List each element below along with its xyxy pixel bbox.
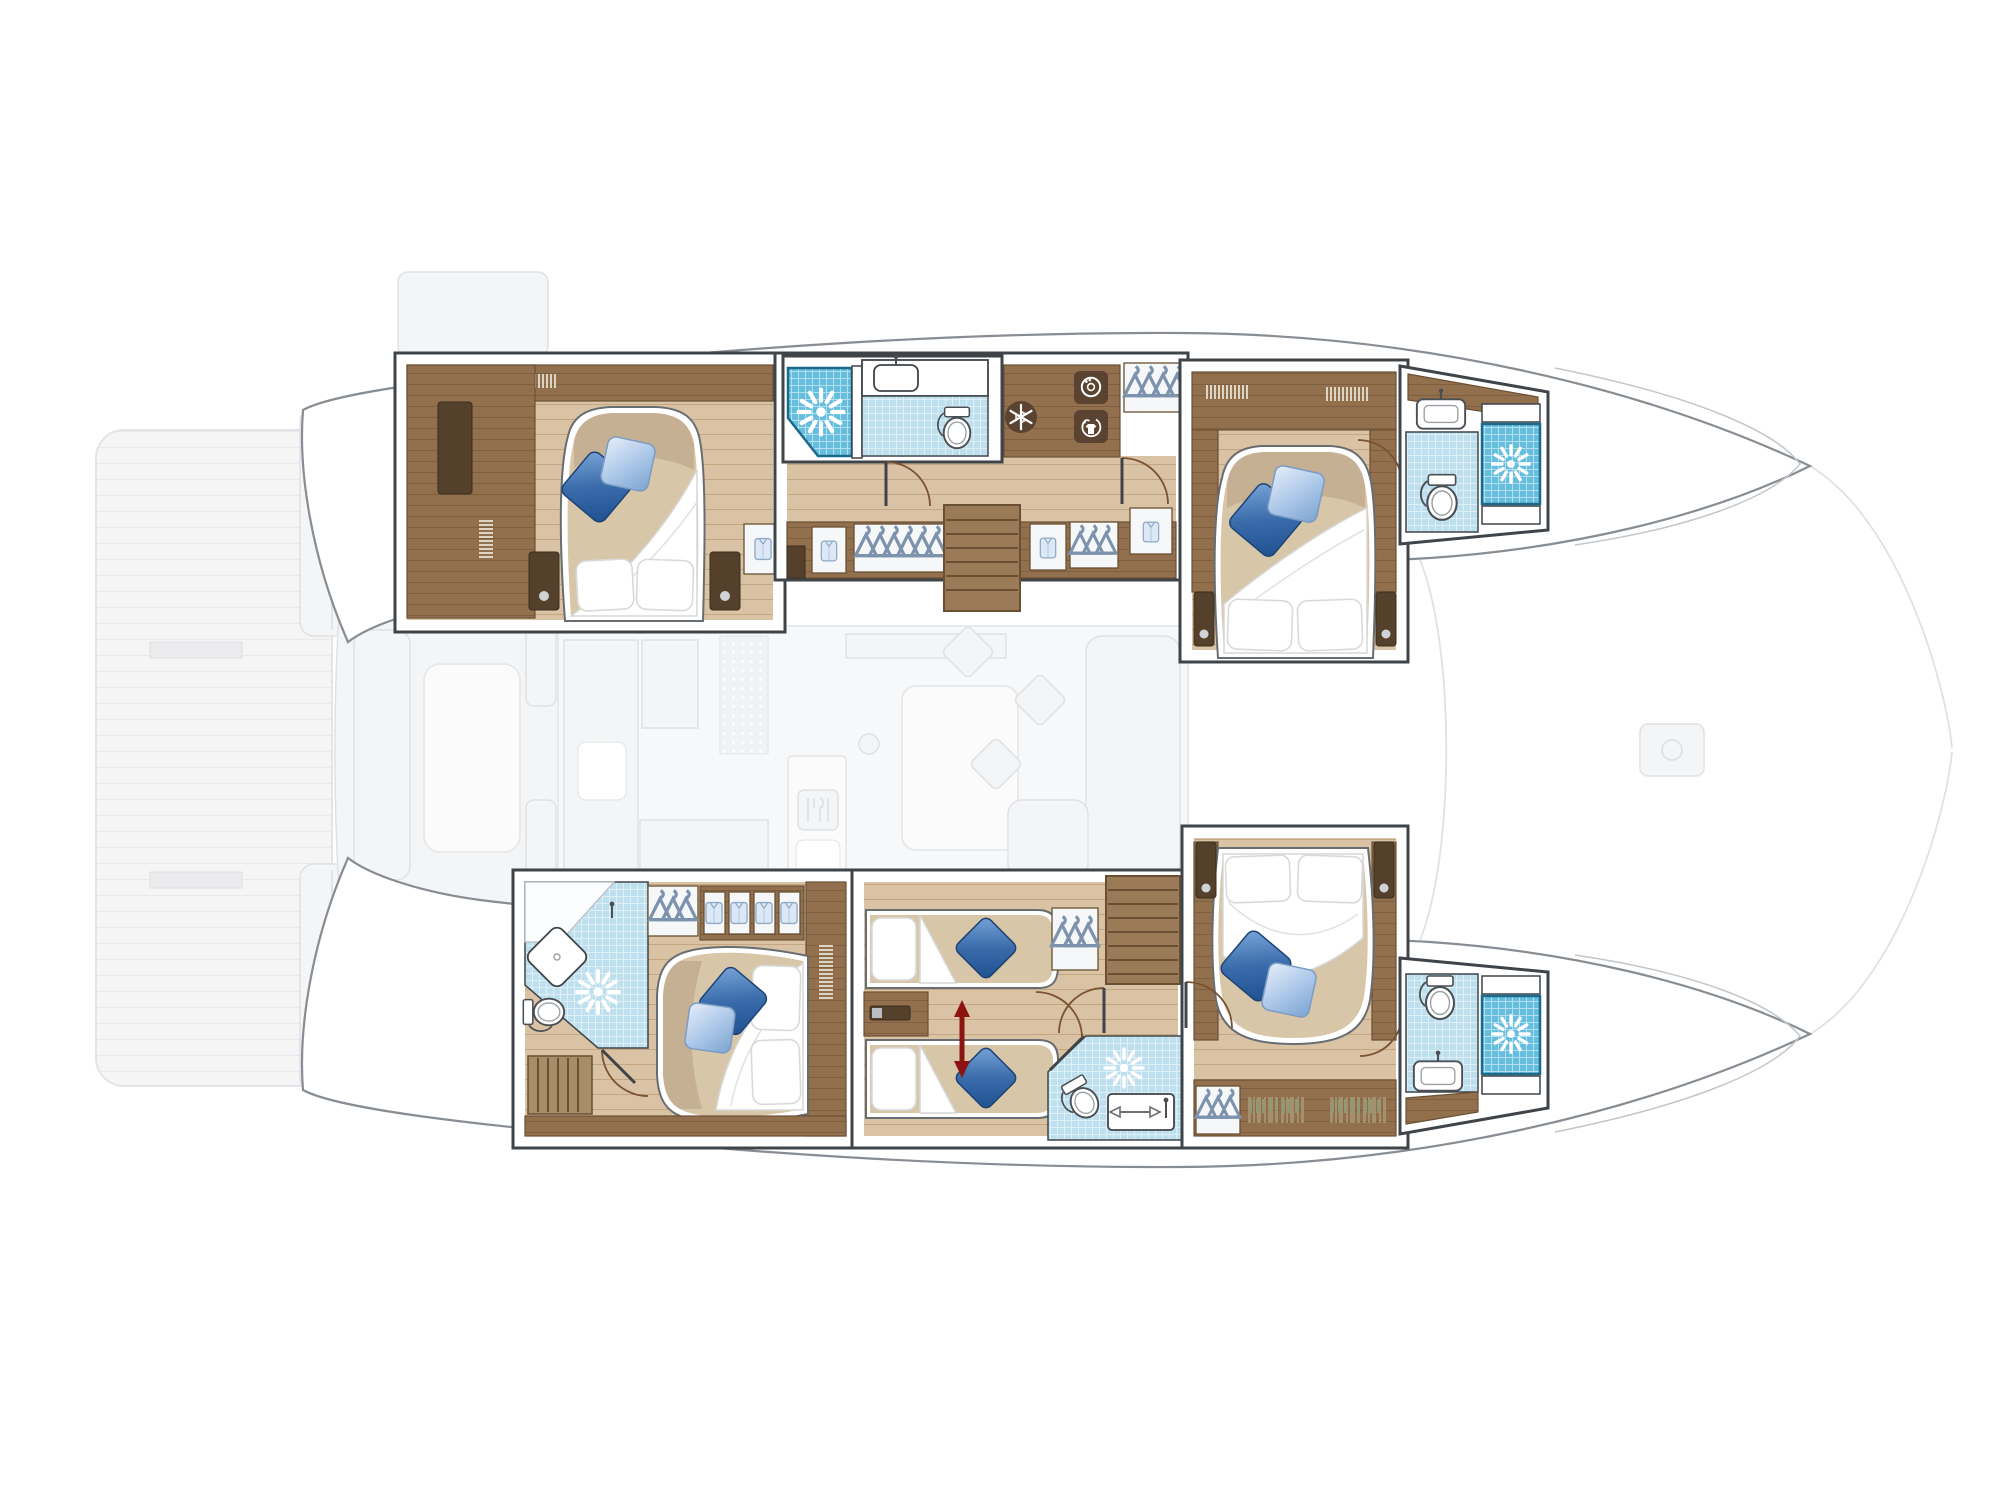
sofa-ghost: [1086, 636, 1180, 878]
starboard-forward-bathroom: [1400, 958, 1548, 1134]
double-bed: [1215, 446, 1376, 658]
bed-pillow: [1297, 599, 1363, 651]
decor-pillow-light: [1266, 464, 1325, 523]
bed-pillow: [1227, 599, 1293, 651]
double-bed: [559, 407, 705, 621]
bowsprit-line-ghost: [1810, 752, 1952, 1034]
port-aft-cabin: [395, 353, 785, 632]
starboard-mid-cabin: [852, 870, 1190, 1148]
shirt-icon: [706, 903, 722, 924]
cutlery-icon: [798, 790, 838, 830]
bedside-handle: [720, 591, 730, 601]
bedside-cabinet: [710, 552, 740, 610]
platform-hatch-ghost: [150, 872, 242, 888]
galley-sink-ghost: [578, 742, 626, 800]
shower-bench: [1482, 1076, 1540, 1094]
towel-icon: [821, 541, 836, 561]
shower-wall: [852, 366, 862, 458]
platform-hatch-ghost: [150, 642, 242, 658]
towel-icon: [1040, 538, 1055, 558]
bookshelf: [1330, 1106, 1386, 1110]
decor-pillow-light: [600, 436, 657, 493]
bed-pillow: [1225, 855, 1291, 903]
lower-cabinet-band: [525, 1116, 846, 1136]
starboard-hull-interior: [513, 826, 1548, 1148]
cockpit-bench-ghost: [354, 630, 410, 880]
windlass-ghost: [1640, 724, 1704, 776]
deck-plan-page: [0, 0, 2000, 1500]
swim-platform-ghost: [96, 430, 332, 1086]
companionway-stairs-port: [944, 505, 1020, 611]
shirt-icon: [731, 903, 747, 924]
towel-icon: [1143, 522, 1158, 542]
bookshelf: [1248, 1106, 1304, 1110]
bedside-cabinet: [529, 552, 559, 610]
port-forward-bathroom: [1400, 366, 1548, 544]
cabinet-panel: [438, 402, 472, 494]
double-bed: [1212, 848, 1373, 1044]
bedside-handle: [1382, 630, 1391, 639]
bedside-handle: [539, 591, 549, 601]
shirt-icon: [781, 903, 797, 924]
decor-pillow-light: [684, 1002, 736, 1054]
shower-bench: [1482, 404, 1540, 422]
starboard-forward-cabin: [1182, 826, 1408, 1148]
port-forward-cabin: [1180, 360, 1408, 662]
bed-pillow: [751, 1039, 801, 1105]
bowsprit-line-ghost: [1810, 466, 1952, 748]
shower-bench: [1482, 976, 1540, 994]
bedside-handle: [1380, 884, 1389, 893]
slatted-bench: [528, 1056, 592, 1114]
bedside-handle: [1202, 884, 1211, 893]
helm-ghost: [398, 272, 548, 356]
washbasin-icon: [874, 365, 918, 391]
table-leg-ghost: [859, 734, 879, 754]
double-bed: [657, 947, 808, 1123]
port-hull-interior: [395, 353, 1548, 662]
cockpit-table-ghost: [424, 664, 520, 852]
deck-plan-svg: [0, 0, 2000, 1500]
fridge-ghost: [642, 640, 698, 728]
bed-pillow: [872, 1048, 916, 1110]
twin-bed-upper: [866, 910, 1058, 988]
bed-pillow: [576, 559, 635, 612]
starboard-aft-cabin: [513, 870, 858, 1148]
washer-panel: [1074, 371, 1108, 404]
dotted-mat-ghost: [720, 636, 768, 754]
windshield-ghost: [1420, 560, 1446, 940]
top-cabinet-band: [1192, 372, 1396, 430]
shirt-icon: [756, 903, 772, 924]
cutlery-locker-ghost: [788, 756, 846, 878]
decor-pillow-light: [1261, 962, 1318, 1019]
galley-counter-ghost: [640, 820, 768, 876]
bed-pillow: [1297, 855, 1363, 903]
bedside-handle: [1200, 630, 1209, 639]
shower-bench: [1482, 506, 1540, 524]
bed-pillow: [636, 559, 694, 611]
towel-icon: [755, 539, 771, 560]
sofa-corner-ghost: [1008, 800, 1088, 878]
tall-cabinet: [787, 546, 805, 578]
bed-pillow: [872, 918, 916, 980]
companionway-stairs-starboard: [1106, 876, 1180, 984]
side-cabinet: [806, 882, 846, 1136]
